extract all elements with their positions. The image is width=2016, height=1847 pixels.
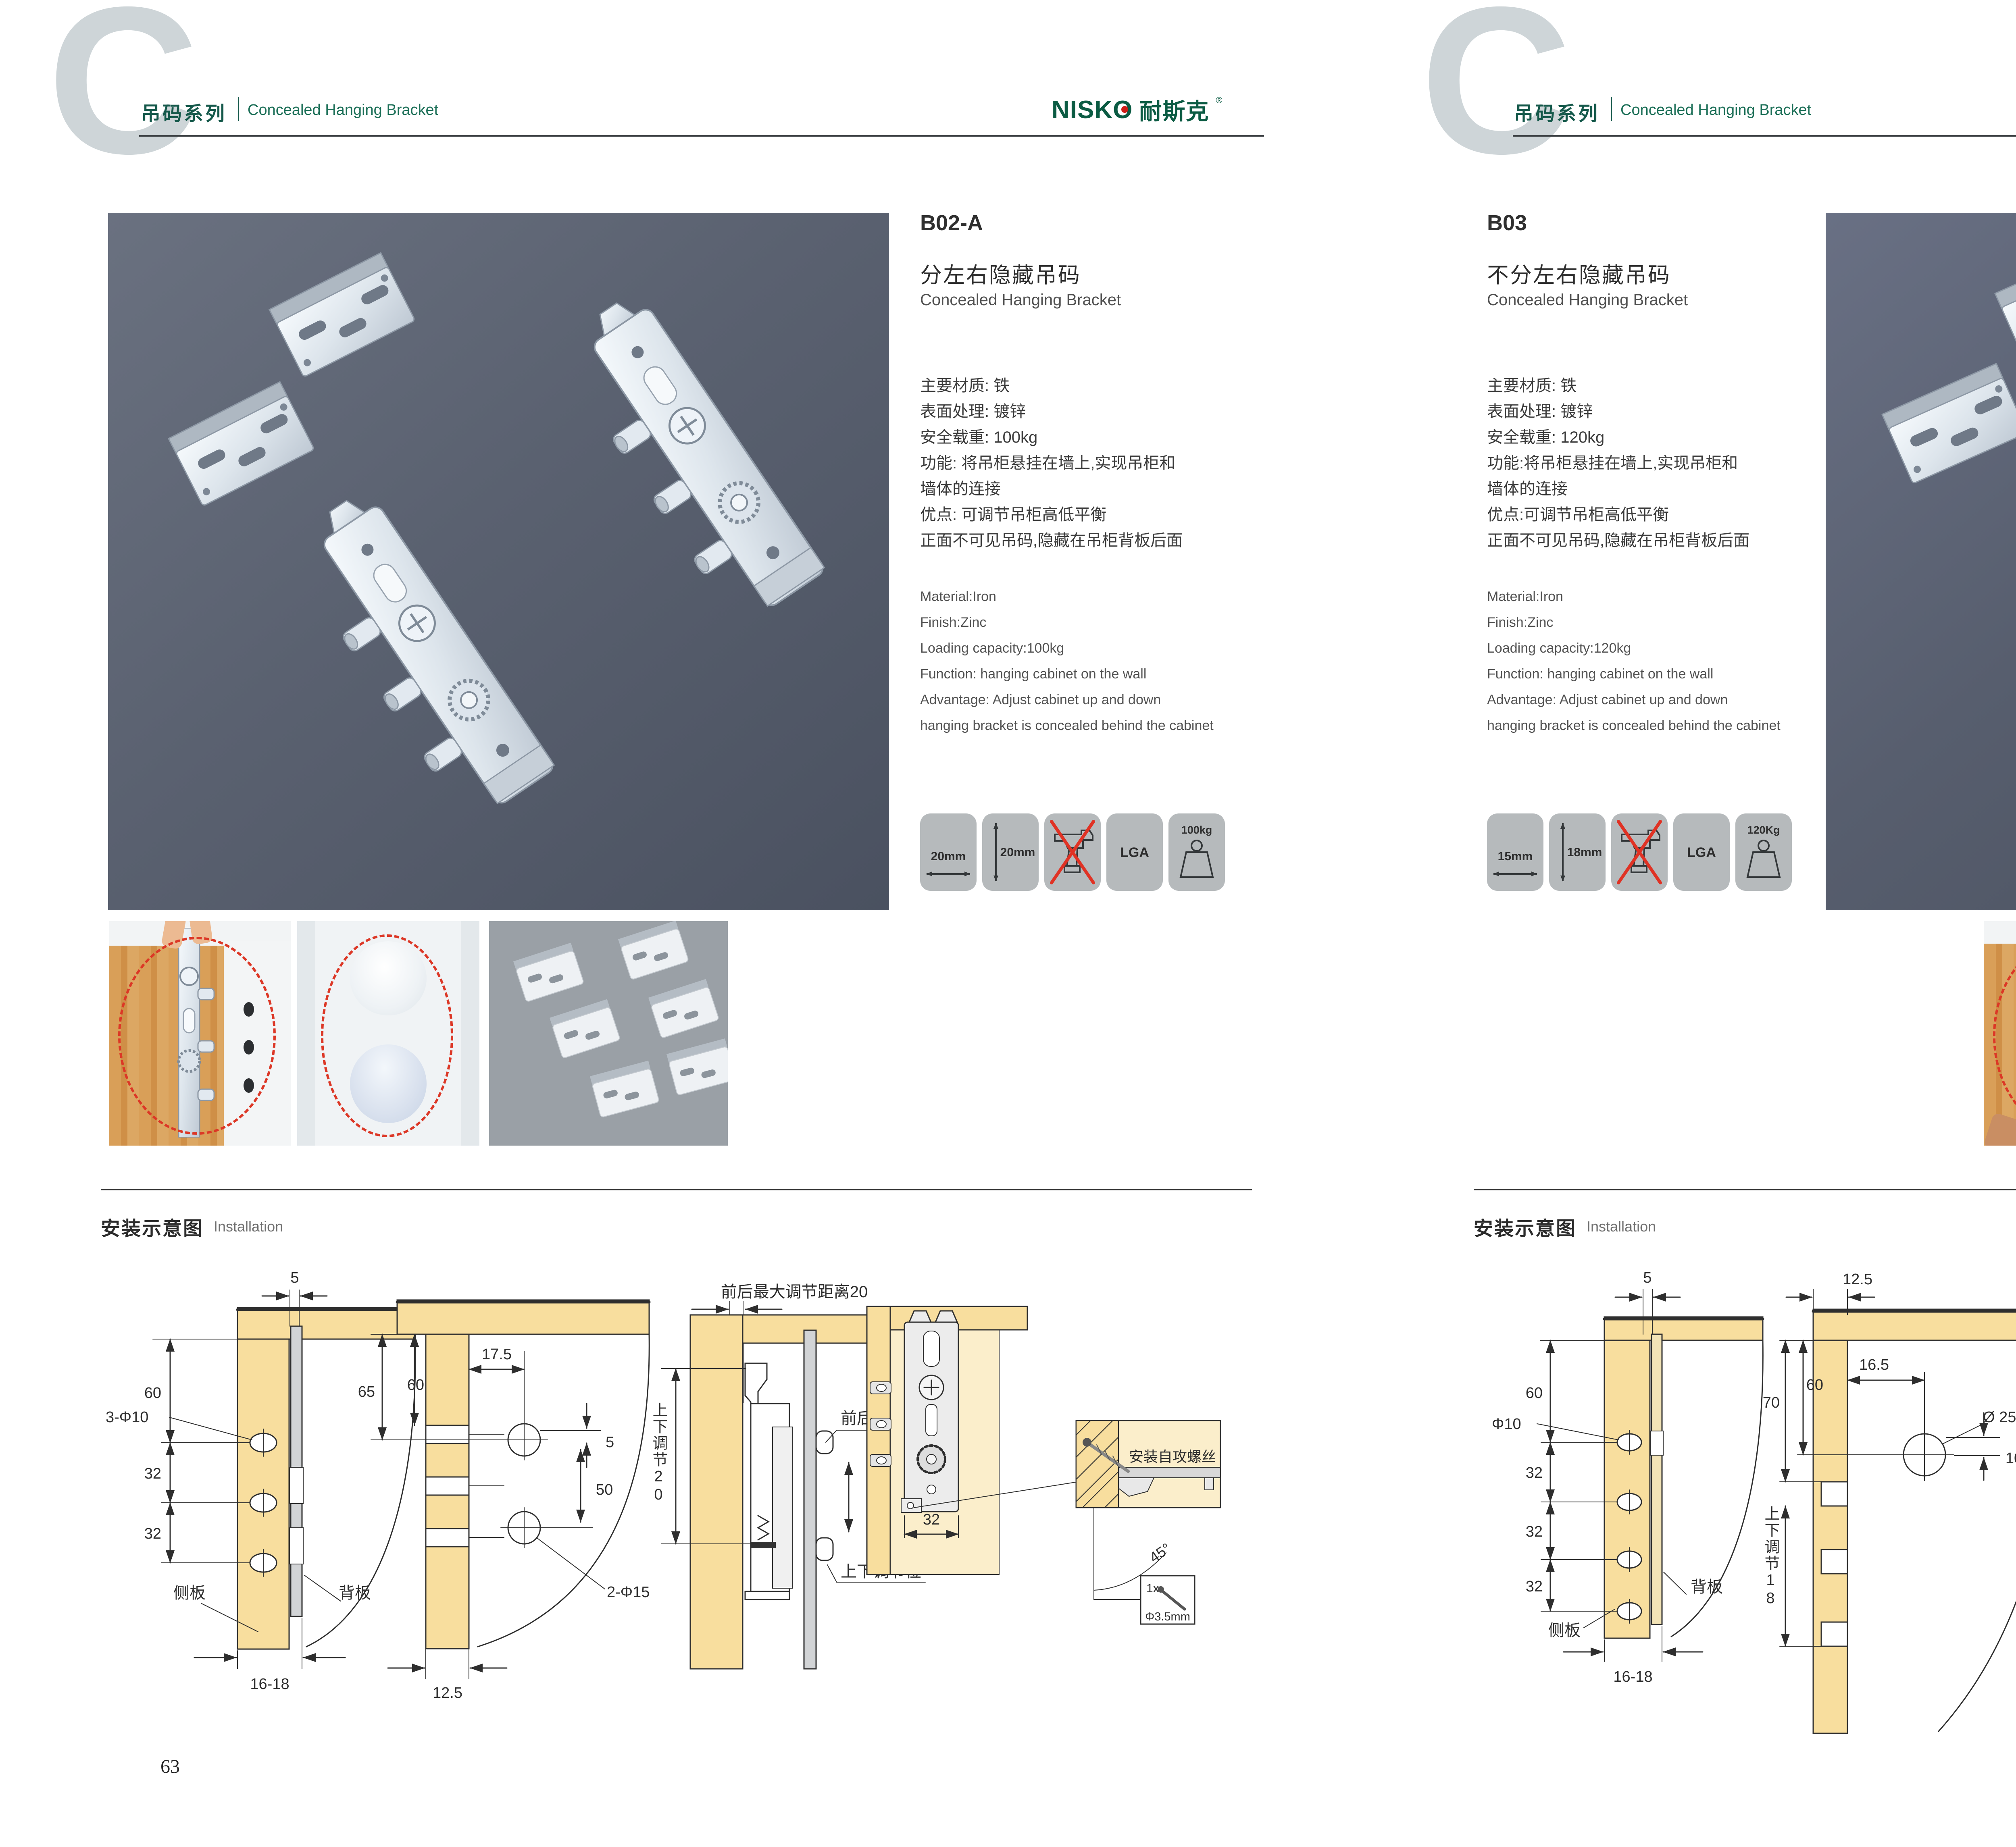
series-title-en-right: Concealed Hanging Bracket (1620, 102, 1811, 119)
screw-qty: 1x (1146, 1582, 1159, 1595)
spec-line: Loading capacity:100kg (920, 635, 1214, 661)
dim-label: Ø 25 (1983, 1409, 2016, 1426)
spec-line: Finish:Zinc (920, 609, 1214, 635)
model-number: B02-A (920, 210, 983, 235)
spec-line: 优点:可调节吊柜高低平衡 (1487, 502, 1749, 528)
wall-plate-illustration (169, 382, 314, 506)
page-number-left: 63 (160, 1755, 180, 1778)
icon-width: 20mm (920, 813, 977, 891)
registered-mark: ® (1216, 95, 1222, 106)
cross-out-icon (1618, 822, 1660, 883)
part-label: 背板 (1691, 1578, 1723, 1596)
dim-label: 5 (606, 1434, 614, 1451)
dim-label: 3-Φ10 (106, 1409, 148, 1426)
dim-label: 12.5 (1843, 1271, 1872, 1288)
dim-label: 16.5 (1859, 1356, 1889, 1373)
icon-certification: LGA (1106, 813, 1163, 891)
icon-no-drill (1611, 813, 1668, 891)
spec-line: 主要材质: 铁 (920, 373, 1183, 399)
product-title-cn: 分左右隐藏吊码 (920, 257, 1081, 289)
spec-line: 表面处理: 镀锌 (920, 399, 1183, 424)
spec-line: Function: hanging cabinet on the wall (1487, 661, 1781, 687)
series-letter-right: C (1420, 0, 1572, 185)
dim-label: 60 (407, 1377, 424, 1394)
icon-height-label: 20mm (1000, 846, 1035, 859)
spec-line: 墙体的连接 (1487, 476, 1749, 502)
photo-installed-on-wood (1984, 921, 2016, 1146)
part-label: 侧板 (173, 1584, 206, 1602)
bracket-photo-illustration (1826, 213, 2016, 910)
specs-english: Material:Iron Finish:Zinc Loading capaci… (1487, 584, 1781, 738)
spec-line: 优点: 可调节吊柜高低平衡 (920, 502, 1183, 528)
spec-line: 墙体的连接 (920, 476, 1183, 502)
dim-label: 32 (923, 1511, 940, 1528)
highlight-ellipse (321, 934, 453, 1137)
diagram-side-panel: 5 60 3-Φ10 32 32 16-18 侧板 背板 (106, 1269, 415, 1693)
dim-label: 32 (1526, 1464, 1543, 1481)
title-divider-right (1611, 97, 1612, 121)
dim-label: 70 (1763, 1394, 1780, 1411)
icon-load-capacity: 100kg (1168, 813, 1225, 891)
screw-spec-box: 1x Φ3.5mm (1141, 1576, 1195, 1624)
feature-icons: 20mm 20mm LGA (920, 813, 1225, 891)
dim-label: 17.5 (482, 1346, 512, 1363)
product-title-cn: 不分左右隐藏吊码 (1487, 257, 1671, 289)
specs-english: Material:Iron Finish:Zinc Loading capaci… (920, 584, 1214, 738)
icon-width-label: 15mm (1498, 850, 1533, 863)
spec-line: Material:Iron (1487, 584, 1781, 609)
weight-icon (1747, 840, 1780, 877)
installation-title-en: Installation (1587, 1218, 1656, 1235)
dim-label: 60 (144, 1385, 161, 1402)
icon-height-label: 18mm (1567, 846, 1602, 859)
model-number: B03 (1487, 210, 1527, 235)
hanging-bracket-illustration (550, 289, 826, 628)
inset-label: 安装自攻螺丝 (1129, 1448, 1216, 1465)
dim-label: 60 (1806, 1377, 1823, 1394)
spec-line: 安全载重: 120kg (1487, 424, 1749, 450)
installation-title-cn: 安装示意图 (101, 1213, 204, 1241)
product-title-en: Concealed Hanging Bracket (1487, 291, 1688, 309)
wall-plates-illustration (489, 921, 728, 1146)
plate-group (513, 921, 728, 1117)
specs-chinese: 主要材质: 铁 表面处理: 镀锌 安全载重: 100kg 功能: 将吊柜悬挂在墙… (920, 373, 1183, 553)
spec-line: hanging bracket is concealed behind the … (920, 713, 1214, 738)
icon-load-label: 120Kg (1747, 824, 1780, 836)
installation-rule (1474, 1189, 2016, 1190)
spec-line: 功能:将吊柜悬挂在墙上,实现吊柜和 (1487, 450, 1749, 476)
dim-label: 60 (1526, 1385, 1543, 1402)
series-letter-left: C (48, 0, 199, 185)
logo-wordmark: NISKO (1052, 96, 1133, 124)
spec-line: Advantage: Adjust cabinet up and down (920, 687, 1214, 713)
spec-line: 功能: 将吊柜悬挂在墙上,实现吊柜和 (920, 450, 1183, 476)
spec-line: 安全载重: 100kg (920, 424, 1183, 450)
screw-dia: Φ3.5mm (1145, 1610, 1190, 1623)
photo-wall-plates-set (489, 921, 728, 1146)
title-divider-left (238, 97, 239, 121)
header-rule-right (1513, 135, 2016, 137)
catalog-spread: C 吊码系列 Concealed Hanging Bracket NISKO 耐… (0, 0, 2016, 1847)
product-title-en: Concealed Hanging Bracket (920, 291, 1121, 309)
dim-label: 2-Φ15 (607, 1584, 650, 1601)
photo-concealed-result (297, 921, 479, 1146)
specs-chinese: 主要材质: 铁 表面处理: 镀锌 安全载重: 120kg 功能:将吊柜悬挂在墙上… (1487, 373, 1749, 553)
installation-diagrams-right: 5 60 Φ10 32 32 32 16-18 侧板 背板 (1452, 1250, 2016, 1794)
dim-label: 前后最大调节距离20 (721, 1283, 868, 1301)
installation-title-cn: 安装示意图 (1474, 1213, 1577, 1241)
brand-logo-left: NISKO 耐斯克 ® (1052, 94, 1223, 126)
dim-label: 32 (144, 1525, 161, 1542)
dim-label: 65 (358, 1383, 375, 1400)
dim-label: 32 (1526, 1523, 1543, 1540)
icon-height: 18mm (1549, 813, 1606, 891)
screw-inset: 安装自攻螺丝 (1076, 1421, 1220, 1508)
product-photo-b03 (1826, 213, 2016, 910)
bracket-photo-illustration (108, 213, 889, 910)
installation-diagrams-left: 5 60 3-Φ10 32 32 16-18 侧板 背板 (97, 1258, 1266, 1766)
cabinet-top (1984, 921, 2016, 944)
icon-width: 15mm (1487, 813, 1543, 891)
icon-no-drill (1044, 813, 1101, 891)
photo-installed-on-wood (109, 921, 291, 1146)
icon-width-label: 20mm (931, 850, 966, 863)
dim-label: 32 (144, 1465, 161, 1482)
dim-label: 16-18 (1613, 1668, 1652, 1685)
diagram-back-panel: 12.5 70 60 16.5 Ø 25 10 (1763, 1271, 2016, 1733)
angle-label: 45° (1146, 1540, 1174, 1566)
spec-line: 主要材质: 铁 (1487, 373, 1749, 399)
cross-out-icon (1052, 822, 1093, 883)
dim-label: 16-18 (250, 1676, 289, 1693)
wall-plate-illustration (1995, 243, 2016, 363)
spec-line: 正面不可见吊码,隐藏在吊柜背板后面 (1487, 528, 1749, 553)
product-photo-b02a (108, 213, 889, 910)
series-title-cn-right: 吊码系列 (1514, 98, 1599, 126)
spec-line: Loading capacity:120kg (1487, 635, 1781, 661)
spec-line: hanging bracket is concealed behind the … (1487, 713, 1781, 738)
spec-line: Function: hanging cabinet on the wall (920, 661, 1214, 687)
diagram-side-panel: 5 60 Φ10 32 32 32 16-18 侧板 背板 (1492, 1269, 1763, 1685)
series-title-en-left: Concealed Hanging Bracket (248, 102, 438, 119)
vertical-dim-label: 上下调节18 (1760, 1506, 1782, 1631)
installation-title-en: Installation (214, 1218, 283, 1235)
dim-label: 10 (2006, 1450, 2016, 1467)
part-label: 侧板 (1548, 1622, 1581, 1639)
hanging-bracket-illustration (280, 487, 556, 826)
installation-rule (101, 1189, 1252, 1190)
hanging-bracket-illustration (2010, 444, 2016, 858)
dim-label: 12.5 (433, 1685, 462, 1701)
diagram-back-panel: 65 60 17.5 5 50 2-Φ15 12.5 (358, 1300, 650, 1701)
icon-load-capacity: 120Kg (1735, 813, 1792, 891)
highlight-ellipse (118, 937, 276, 1135)
vertical-dim-label: 上下调节20 (648, 1402, 670, 1539)
dim-label: 5 (290, 1269, 299, 1286)
wall-plate-illustration (269, 253, 415, 377)
wall-plate-illustration (1882, 364, 2016, 484)
series-title-cn-left: 吊码系列 (141, 98, 227, 126)
spec-line: 正面不可见吊码,隐藏在吊柜背板后面 (920, 528, 1183, 553)
part-label: 背板 (339, 1584, 371, 1602)
icon-height: 20mm (982, 813, 1039, 891)
feature-icons: 15mm 18mm LGA (1487, 813, 1792, 891)
spec-line: Finish:Zinc (1487, 609, 1781, 635)
spec-line: Advantage: Adjust cabinet up and down (1487, 687, 1781, 713)
dim-label: 5 (1643, 1269, 1652, 1286)
icon-load-label: 100kg (1181, 824, 1212, 836)
dim-label: Φ10 (1492, 1416, 1521, 1433)
dim-label: 32 (1526, 1578, 1543, 1595)
spec-line: 表面处理: 镀锌 (1487, 399, 1749, 424)
icon-cert-label: LGA (1120, 845, 1149, 860)
logo-chinese: 耐斯克 (1139, 94, 1209, 126)
spec-line: Material:Iron (920, 584, 1214, 609)
icon-cert-label: LGA (1687, 845, 1716, 860)
header-rule-left (139, 135, 1264, 137)
icon-certification: LGA (1673, 813, 1730, 891)
dim-label: 50 (596, 1481, 613, 1498)
weight-icon (1181, 840, 1213, 877)
